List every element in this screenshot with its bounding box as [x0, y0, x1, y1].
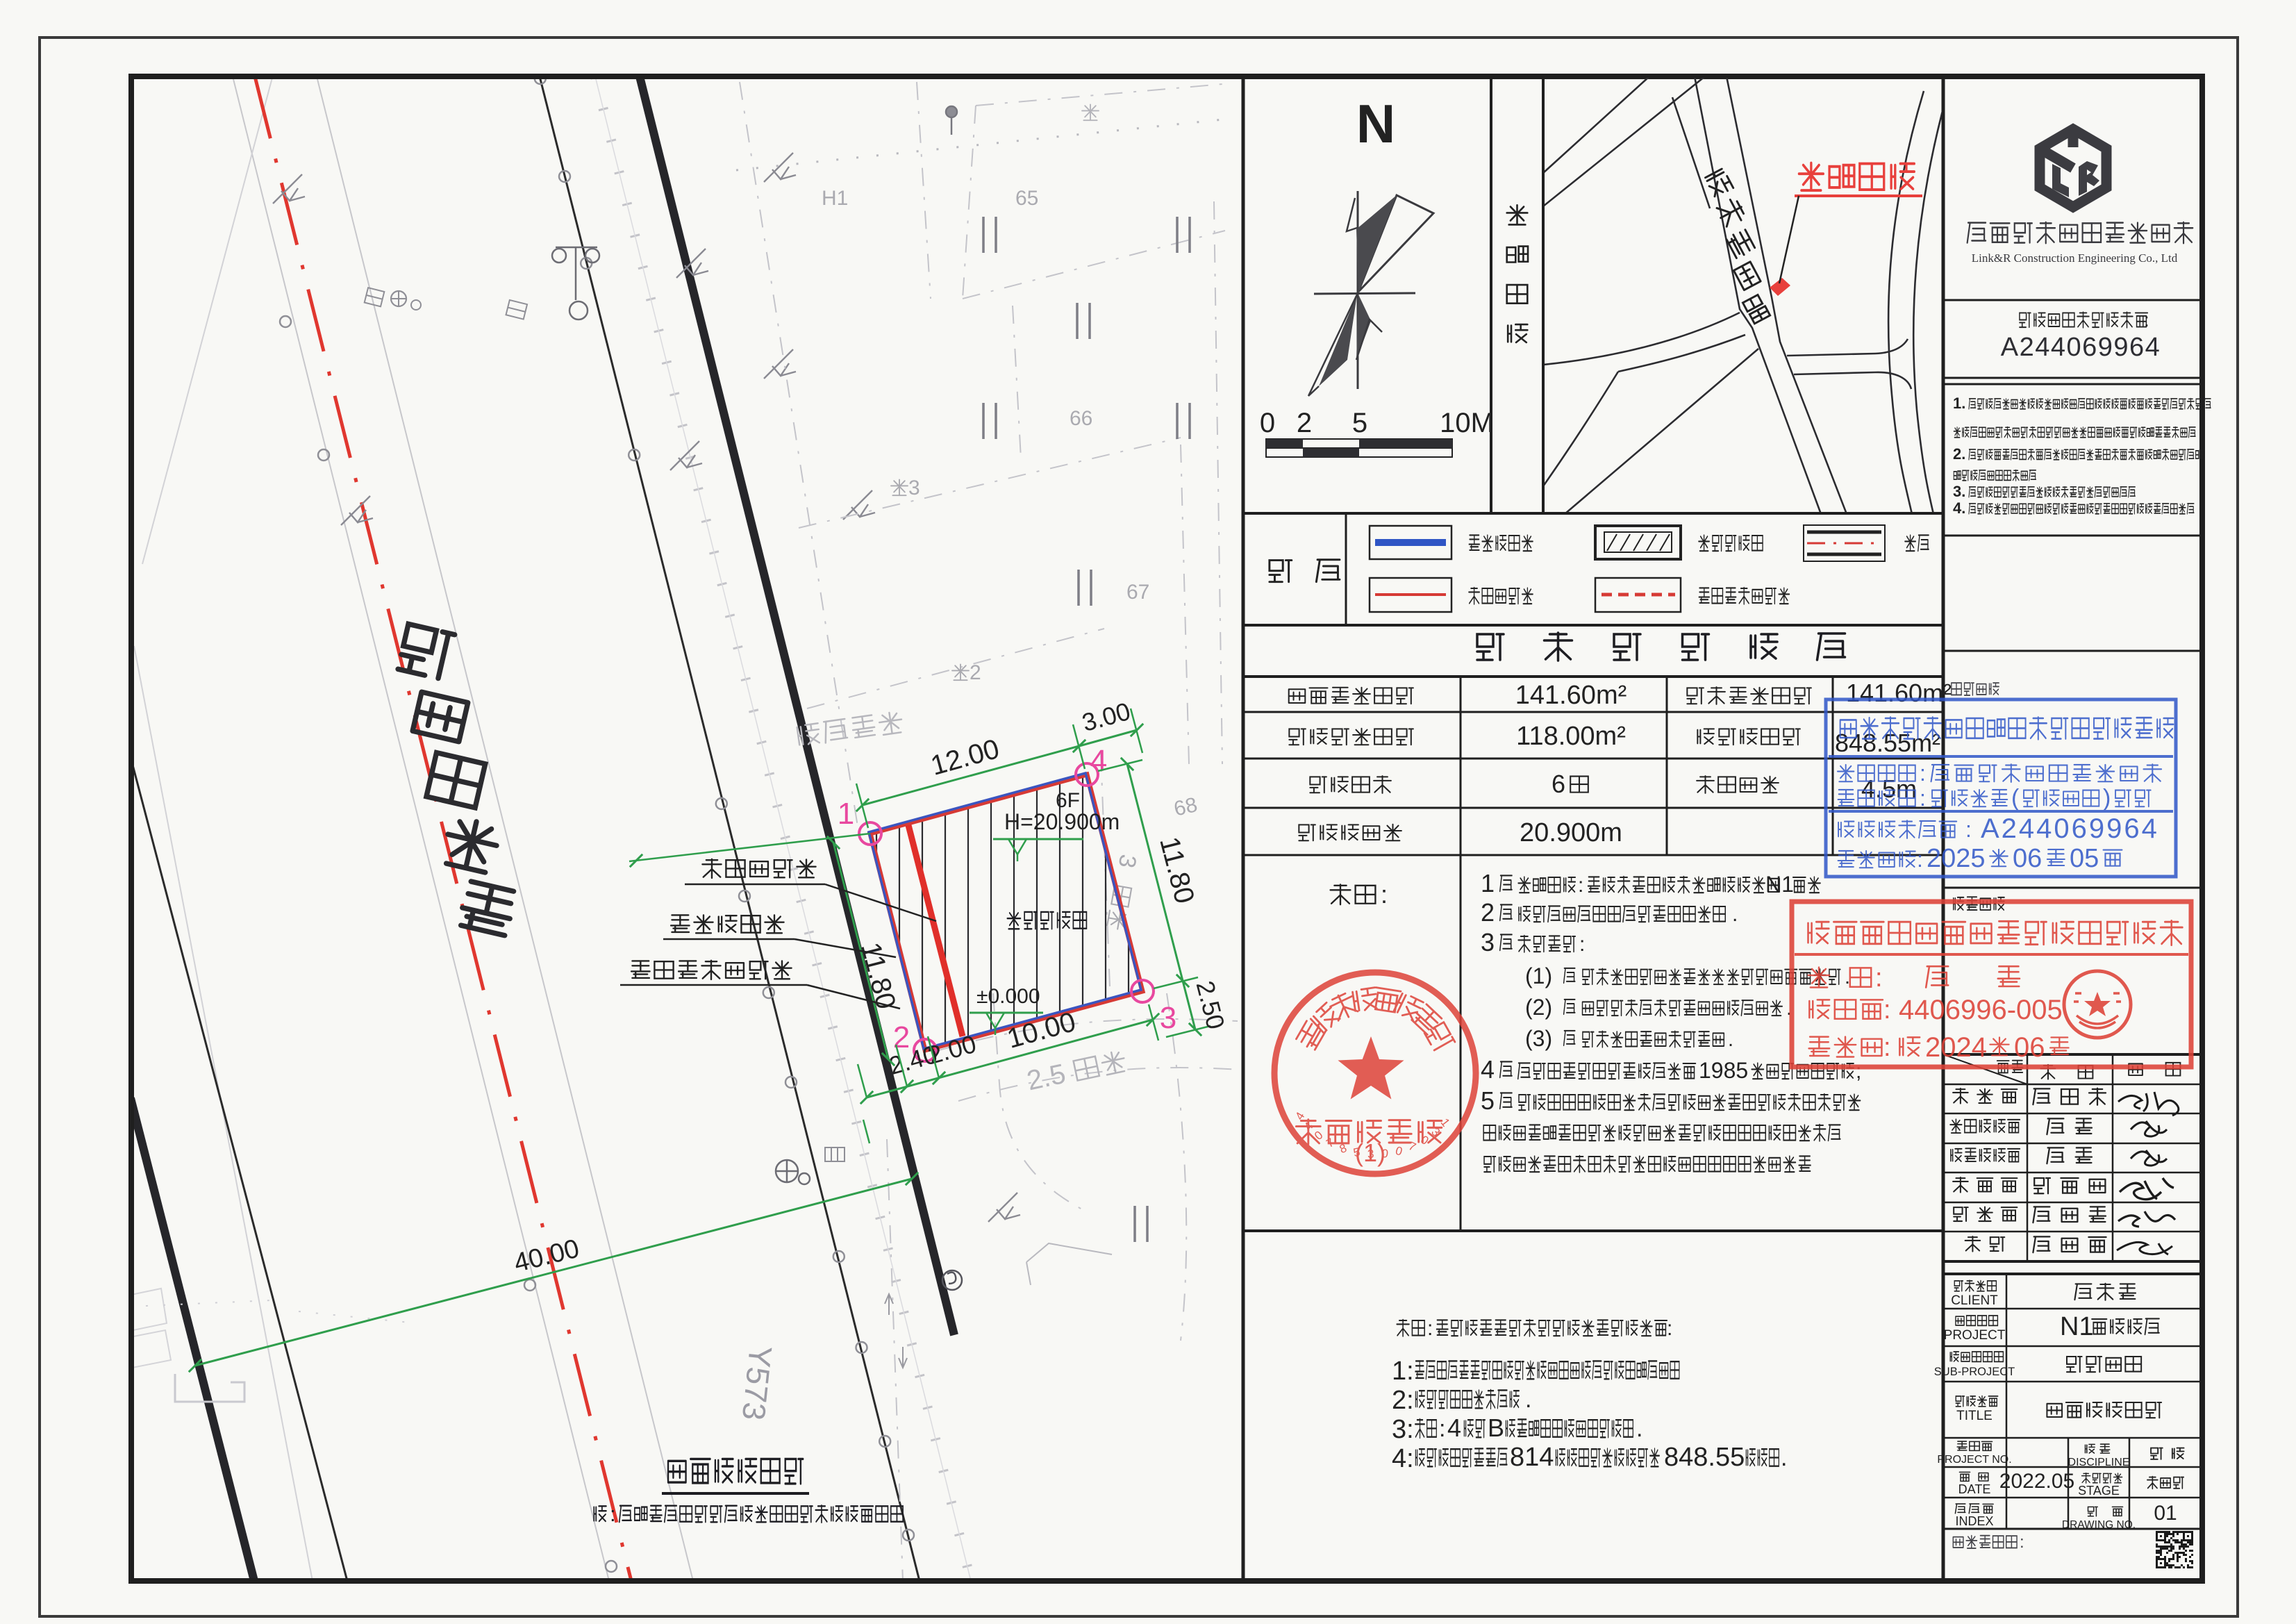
svg-text:3: 3 [1160, 1001, 1176, 1035]
svg-text:.: . [1781, 1445, 1787, 1471]
svg-text:4: 4 [1447, 1414, 1461, 1442]
svg-text:CLIENT: CLIENT [1951, 1293, 1998, 1308]
svg-text:06: 06 [2013, 844, 2042, 873]
svg-text:(3): (3) [1525, 1026, 1552, 1051]
svg-text::: : [610, 1502, 616, 1526]
svg-text:0: 0 [1260, 408, 1275, 438]
svg-text:2022.05: 2022.05 [1999, 1470, 2074, 1493]
svg-text:.: . [1636, 1416, 1642, 1442]
svg-text:06: 06 [2014, 1032, 2045, 1063]
svg-text:N: N [1356, 93, 1395, 154]
svg-text:PROJECT NO.: PROJECT NO. [1937, 1454, 2011, 1466]
svg-text:2025: 2025 [1927, 844, 1986, 873]
svg-text:N1: N1 [1765, 872, 1794, 897]
svg-text:141.60m²: 141.60m² [1515, 681, 1627, 710]
svg-text::: : [1920, 786, 1926, 811]
svg-text:2024: 2024 [1925, 1032, 1987, 1063]
svg-text:INDEX: INDEX [1955, 1514, 1993, 1528]
svg-text:5: 5 [1352, 408, 1367, 438]
svg-text:141.60m²: 141.60m² [1846, 679, 1952, 707]
svg-text:20.900m: 20.900m [1520, 818, 1622, 847]
svg-text:(1): (1) [1525, 963, 1552, 988]
svg-text:PROJECT: PROJECT [1944, 1328, 2006, 1343]
svg-text::: : [1439, 1416, 1445, 1442]
svg-text:2:: 2: [1392, 1386, 1414, 1415]
svg-text:814: 814 [1510, 1443, 1554, 1472]
svg-text:1: 1 [838, 797, 854, 831]
svg-text:A244069964: A244069964 [1981, 813, 2159, 844]
svg-text:10M: 10M [1440, 408, 1494, 438]
svg-text:.: . [1728, 1029, 1733, 1051]
svg-text:118.00m²: 118.00m² [1516, 722, 1626, 751]
svg-text::: : [2144, 309, 2149, 331]
svg-text:SUB-PROJECT: SUB-PROJECT [1934, 1366, 2015, 1378]
svg-text:STAGE: STAGE [2078, 1484, 2120, 1498]
svg-text:Link&R Construction Engineerin: Link&R Construction Engineering Co., Ltd [1972, 251, 2178, 265]
svg-text:DISCIPLINE: DISCIPLINE [2068, 1457, 2130, 1468]
svg-text::: : [1920, 761, 1926, 786]
svg-text::: : [1667, 1317, 1672, 1340]
svg-text:4:: 4: [1392, 1444, 1414, 1473]
svg-text:3: 3 [1367, 1147, 1374, 1161]
svg-text:66: 66 [1070, 407, 1092, 430]
svg-text:1985: 1985 [1699, 1058, 1748, 1083]
svg-text:±0.000: ±0.000 [976, 985, 1040, 1008]
svg-text::: : [1427, 1317, 1433, 1340]
svg-text:5: 5 [1481, 1086, 1495, 1115]
svg-text:4406996-005: 4406996-005 [1899, 995, 2063, 1025]
svg-text:3:: 3: [1392, 1415, 1414, 1444]
svg-text:65: 65 [1015, 187, 1038, 210]
svg-text:DATE: DATE [1958, 1482, 1991, 1496]
svg-text::: : [1965, 817, 1972, 842]
svg-text:6: 6 [1552, 770, 1565, 798]
svg-text:.: . [1732, 903, 1738, 926]
svg-text::: : [1917, 847, 1923, 872]
svg-text:A244069964: A244069964 [2001, 333, 2161, 362]
svg-text:3: 3 [1481, 928, 1495, 956]
svg-text:B: B [1488, 1414, 1504, 1442]
svg-text:DRAWING NO.: DRAWING NO. [2062, 1519, 2136, 1531]
svg-text:TITLE: TITLE [1956, 1409, 1993, 1423]
svg-text:4: 4 [1481, 1055, 1495, 1084]
svg-text:2.: 2. [1953, 445, 1965, 463]
svg-text::: : [1381, 880, 1388, 909]
svg-text:1.: 1. [1953, 395, 1965, 412]
svg-text:(2): (2) [1525, 995, 1552, 1020]
svg-text:05: 05 [2070, 844, 2099, 873]
svg-text:N1: N1 [2060, 1312, 2094, 1341]
svg-text:2: 2 [1481, 898, 1495, 927]
svg-text::: : [1875, 963, 1883, 993]
svg-text::: : [1883, 995, 1891, 1025]
svg-text:1:: 1: [1392, 1357, 1414, 1386]
svg-text:H=20.900m: H=20.900m [1004, 809, 1120, 834]
svg-text:H1: H1 [822, 187, 848, 210]
svg-text::: : [1578, 874, 1583, 897]
svg-text:01: 01 [2154, 1502, 2177, 1525]
svg-text:3: 3 [908, 477, 920, 499]
svg-text:67: 67 [1126, 581, 1149, 604]
svg-text::: : [1579, 933, 1585, 956]
svg-text:1: 1 [1481, 869, 1495, 897]
svg-text:;: ; [1856, 1060, 1861, 1083]
svg-text:2: 2 [970, 661, 981, 684]
svg-text:3.: 3. [1953, 483, 1965, 500]
svg-text:): ) [2103, 785, 2111, 811]
svg-text::: : [1883, 1033, 1891, 1062]
svg-text:4.: 4. [1953, 499, 1965, 517]
svg-text::: : [2020, 1533, 2024, 1552]
svg-text:.: . [1525, 1386, 1531, 1413]
svg-text:4: 4 [1090, 744, 1107, 778]
svg-text:848.55: 848.55 [1664, 1443, 1745, 1472]
svg-text:2: 2 [1297, 408, 1312, 438]
svg-text:(: ( [2011, 785, 2020, 811]
